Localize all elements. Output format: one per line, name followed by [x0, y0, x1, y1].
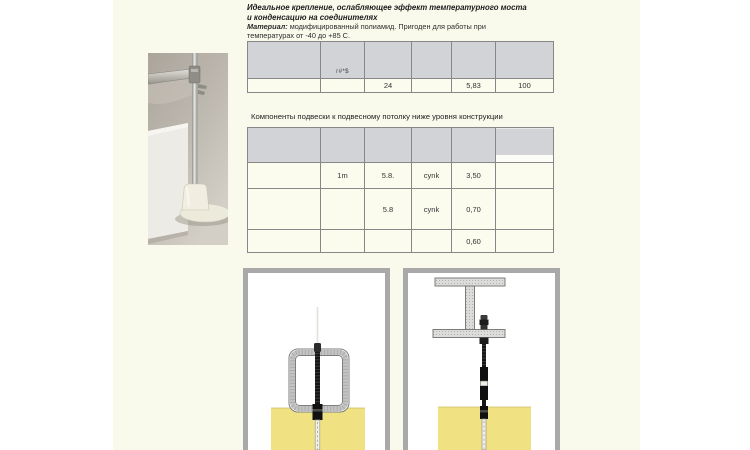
diagram-beam-suspension — [403, 268, 560, 450]
table-cell — [321, 189, 365, 230]
material-label: Материал: — [247, 22, 288, 31]
table-cell — [496, 163, 554, 189]
material-text: модифицированный полиамид. Пригоден для … — [288, 22, 486, 31]
table-header-cell — [365, 42, 412, 79]
table-cell — [365, 230, 412, 253]
table-header-cell — [496, 128, 554, 163]
material-note: Материал: модифицированный полиамид. При… — [247, 23, 562, 41]
table-header-cell — [452, 42, 496, 79]
table-header-cell — [321, 128, 365, 163]
table-cell: 5.8. — [365, 163, 412, 189]
table-cell: 0,60 — [452, 230, 496, 253]
spec-table-data-row: 24 5,83 100 — [248, 79, 554, 93]
catalog-page: Идеальное крепление, ослабляющее эффект … — [0, 0, 750, 450]
table-cell — [321, 79, 365, 93]
table-cell: cynk — [412, 163, 452, 189]
table-cell — [248, 230, 321, 253]
table-cell — [412, 230, 452, 253]
table-cell — [248, 163, 321, 189]
table-row: 1m 5.8. cynk 3,50 — [248, 163, 554, 189]
table-cell: 1m — [321, 163, 365, 189]
table-header-cell — [248, 128, 321, 163]
diagram-beam-suspension-drawing — [408, 273, 555, 450]
table-cell — [412, 79, 452, 93]
page-title: Идеальное крепление, ослабляющее эффект … — [247, 3, 562, 22]
photo-threaded-rod-with-cap — [148, 53, 228, 245]
table-header-cell — [248, 42, 321, 79]
table-cell — [248, 189, 321, 230]
components-table: 1m 5.8. cynk 3,50 5.8 cynk 0,70 0,60 — [247, 127, 554, 253]
material-line2: температурах от -40 до +85 С. — [247, 32, 562, 41]
components-table-title: Компоненты подвески к подвесному потолку… — [251, 112, 566, 121]
table-header-cell — [365, 128, 412, 163]
table-header-cell — [452, 128, 496, 163]
table-row: 0,60 — [248, 230, 554, 253]
table-cell — [248, 79, 321, 93]
table-cell — [321, 230, 365, 253]
table-header-cell — [412, 128, 452, 163]
table-cell: 24 — [365, 79, 412, 93]
table-cell: 100 — [496, 79, 554, 93]
diagram-profile-suspension-drawing — [248, 273, 385, 450]
table-header-cell — [496, 42, 554, 79]
table-cell: 5.8 — [365, 189, 412, 230]
spec-table: г#*$ 24 5,83 100 — [247, 41, 554, 93]
page-title-line1: Идеальное крепление, ослабляющее эффект … — [247, 3, 562, 13]
table-cell — [496, 189, 554, 230]
page-title-line2: и конденсацию на соединителях — [247, 13, 562, 23]
table-cell: 3,50 — [452, 163, 496, 189]
table-header-cell — [412, 42, 452, 79]
beam-clamp-fastener — [480, 315, 489, 330]
components-table-header-row — [248, 128, 554, 163]
diagram-profile-suspension — [243, 268, 390, 450]
table-cell: 0,70 — [452, 189, 496, 230]
table-row: 5.8 cynk 0,70 — [248, 189, 554, 230]
table-cell: cynk — [412, 189, 452, 230]
i-beam — [433, 278, 505, 338]
table-cell — [496, 230, 554, 253]
product-photo — [148, 53, 228, 245]
spec-table-header-note: г#*$ — [321, 42, 365, 79]
connector-sleeve — [481, 381, 488, 386]
spec-table-header-row: г#*$ — [248, 42, 554, 79]
table-cell: 5,83 — [452, 79, 496, 93]
